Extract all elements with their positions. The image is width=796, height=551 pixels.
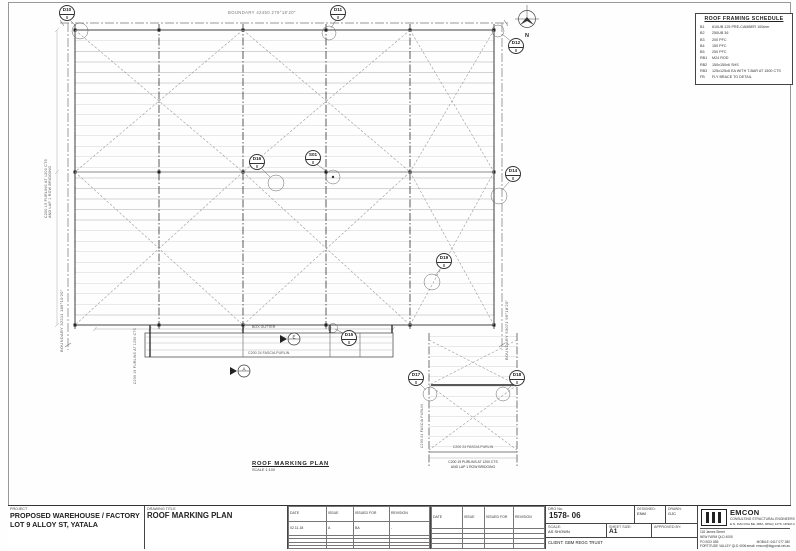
box-gutter-label: BOX GUTTER — [252, 325, 275, 329]
revision-table-2: DATE ISSUE ISSUED FOR REVISION — [430, 506, 545, 549]
detail-callout-d16: D16 8 — [249, 154, 265, 170]
logo-bar — [718, 512, 721, 523]
rev-header-issue: ISSUE — [327, 507, 354, 522]
plan-caption-title: ROOF MARKING PLAN — [252, 461, 329, 467]
callout-detail-number: D19 — [437, 254, 451, 263]
logo-bar — [706, 512, 709, 523]
plan-caption: ROOF MARKING PLAN SCALE 1:100 — [252, 461, 329, 472]
callout-detail-number: D17 — [409, 371, 423, 380]
callout-sheet-number: 8 — [331, 15, 345, 22]
drawing-title-cell: DRAWING TITLE ROOF MARKING PLAN — [144, 506, 287, 549]
purlin-note-left-line2: AND LAP 1 ROW BRIDGING — [48, 128, 52, 218]
callout-detail-number: D18 — [510, 371, 524, 380]
fascia-purlin-label-mid: C200 24 FASCIA PURLIN — [248, 351, 289, 355]
detail-callout-d14: D14 8 — [505, 166, 521, 182]
project-line2: LOT 9 ALLOY ST, YATALA — [8, 520, 144, 529]
callout-sheet-number: 8 — [409, 380, 423, 387]
title-block: PROJECT PROPOSED WAREHOUSE / FACTORY LOT… — [8, 505, 791, 548]
rev-empty-row — [289, 545, 430, 548]
project-cell: PROJECT PROPOSED WAREHOUSE / FACTORY LOT… — [8, 506, 144, 549]
scale-value: AS SHOWN — [546, 529, 606, 534]
approved-label: APPROVED BY: — [652, 524, 698, 529]
rev-issue: A — [327, 521, 354, 536]
client-cell: CLIENT: GBM REGG TRUST — [546, 537, 698, 549]
revision-table-1: DATE ISSUE ISSUED FOR REVISION 02.11.18 … — [287, 506, 430, 549]
schedule-desc: FLY BRACE TO DETAIL — [712, 74, 792, 80]
rev-revision: - — [390, 521, 430, 536]
firm-address4: FORTITUDE VALLEY QLD 4006 — [700, 544, 746, 549]
rev2-header-revision: REVISION — [514, 507, 545, 529]
callout-detail-number: D11 — [331, 6, 345, 15]
detail-callout-d11: D11 8 — [330, 5, 346, 21]
rev-header-issued-for: ISSUED FOR — [354, 507, 390, 522]
boundary-left-label: BOUNDARY 32211 189°10'20" — [59, 252, 64, 352]
rev-issued-for: BA — [354, 521, 390, 536]
strip-purlin-note: C200 19 PURLINS AT 1200 CTS — [133, 332, 137, 384]
callout-detail-number: S01 — [306, 151, 320, 160]
canopy-purlin-note: C200 19 PURLINS AT 1200 CTS AND LAP 1 RO… — [427, 460, 519, 470]
roof-framing-schedule: ROOF FRAMING SCHEDULE B1610UB 125 PRE-CA… — [695, 13, 793, 85]
firm-cell: EMCON CONSULTING STRUCTURAL ENGINEERS E.… — [697, 506, 791, 549]
callout-sheet-number: 8 — [506, 176, 520, 183]
detail-callout-d12: D12 8 — [508, 38, 524, 54]
detail-callout-s01: S01 8 — [305, 150, 321, 166]
approved-cell: APPROVED BY: — [651, 523, 698, 537]
callout-detail-number: D12 — [509, 39, 523, 48]
callout-sheet-number: 8 — [60, 15, 74, 22]
detail-callout-d19: D19 8 — [436, 253, 452, 269]
roof-purlin-lines — [75, 30, 494, 325]
drg-no-value: 1578- 06 — [546, 511, 634, 520]
rev-empty-row — [432, 544, 545, 549]
callout-detail-number: D10 — [60, 6, 74, 15]
rev2-header-date: DATE — [432, 507, 463, 529]
callout-sheet-number: 8 — [437, 263, 451, 270]
callout-detail-number: D15 — [342, 331, 356, 340]
drawing-viewer: { "sheet": { "plan_title": "ROOF MARKING… — [0, 0, 796, 551]
sheet-size-cell: SHEET SIZE: A1 — [606, 523, 651, 537]
canopy-fascia-left-label: C200 24 FASCIA PURLIN — [420, 390, 424, 448]
schedule-row: FBFLY BRACE TO DETAIL — [696, 74, 792, 80]
callout-sheet-number: 8 — [250, 164, 264, 171]
drawing-sheet: N E A BOUNDARY 42450 279°18'20" BOUNDARY… — [0, 0, 796, 551]
firm-address: 118 James Street NEW FARM QLD 4005 PO BO… — [700, 528, 790, 549]
detail-callout-d18: D18 8 — [509, 370, 525, 386]
drawn-cell: DRAWN: GJC — [665, 506, 698, 523]
project-line1: PROPOSED WAREHOUSE / FACTORY — [8, 511, 144, 520]
designed-cell: DESIGNED: ENM — [634, 506, 665, 523]
plan-caption-scale: SCALE 1:100 — [252, 468, 329, 472]
drawn-value: GJC — [666, 511, 698, 516]
boundary-right-label: BOUNDARY 53071 99°18'20" — [504, 260, 509, 360]
client-value: CLIENT: GBM REGG TRUST — [546, 538, 698, 545]
firm-identity: EMCON CONSULTING STRUCTURAL ENGINEERS E.… — [730, 508, 795, 527]
scale-cell: SCALE: AS SHOWN — [546, 523, 606, 537]
callout-detail-number: D14 — [506, 167, 520, 176]
rev-header-revision: REVISION — [390, 507, 430, 522]
detail-callout-d15: D15 8 — [341, 330, 357, 346]
callout-detail-number: D16 — [250, 155, 264, 164]
canopy-fascia-bottom-label: C200 24 FASCIA PURLIN — [429, 445, 517, 449]
emcon-logo — [701, 509, 727, 526]
rev-date: 02.11.18 — [289, 521, 327, 536]
purlin-note-left: C200 19 PURLINS AT 1200 CTS AND LAP 1 RO… — [44, 128, 52, 218]
detail-callout-d10: D10 8 — [59, 5, 75, 21]
firm-credentials: E.N. MACUSA BE, MBA, RPEQ 1378, NPER-3 — [730, 522, 795, 527]
callout-sheet-number: 8 — [510, 380, 524, 387]
drawing-title-value: ROOF MARKING PLAN — [145, 511, 287, 520]
logo-bar — [712, 512, 715, 523]
callout-sheet-number: 8 — [509, 48, 523, 55]
schedule-title: ROOF FRAMING SCHEDULE — [696, 16, 792, 22]
firm-name: EMCON — [730, 508, 795, 517]
designed-value: ENM — [635, 511, 665, 516]
drg-no-cell: DRG No. 1578- 06 — [546, 506, 634, 523]
boundary-top-label: BOUNDARY 42450 279°18'20" — [228, 10, 296, 15]
rev-header-date: DATE — [289, 507, 327, 522]
rev2-header-issued-for: ISSUED FOR — [485, 507, 514, 529]
rev2-header-issue: ISSUE — [463, 507, 485, 529]
callout-sheet-number: 8 — [306, 160, 320, 167]
callout-sheet-number: 8 — [342, 340, 356, 347]
detail-callout-d17: D17 8 — [408, 370, 424, 386]
drawing-info-cell: DRG No. 1578- 06 DESIGNED: ENM DRAWN: GJ… — [545, 506, 697, 549]
canopy-purlin-note-line2: AND LAP 1 ROW BRIDGING — [427, 465, 519, 470]
sheet-size-value: A1 — [607, 528, 651, 535]
schedule-tag: FB — [700, 74, 712, 80]
firm-email: email: emcon@bigpond.net.au — [747, 544, 790, 549]
